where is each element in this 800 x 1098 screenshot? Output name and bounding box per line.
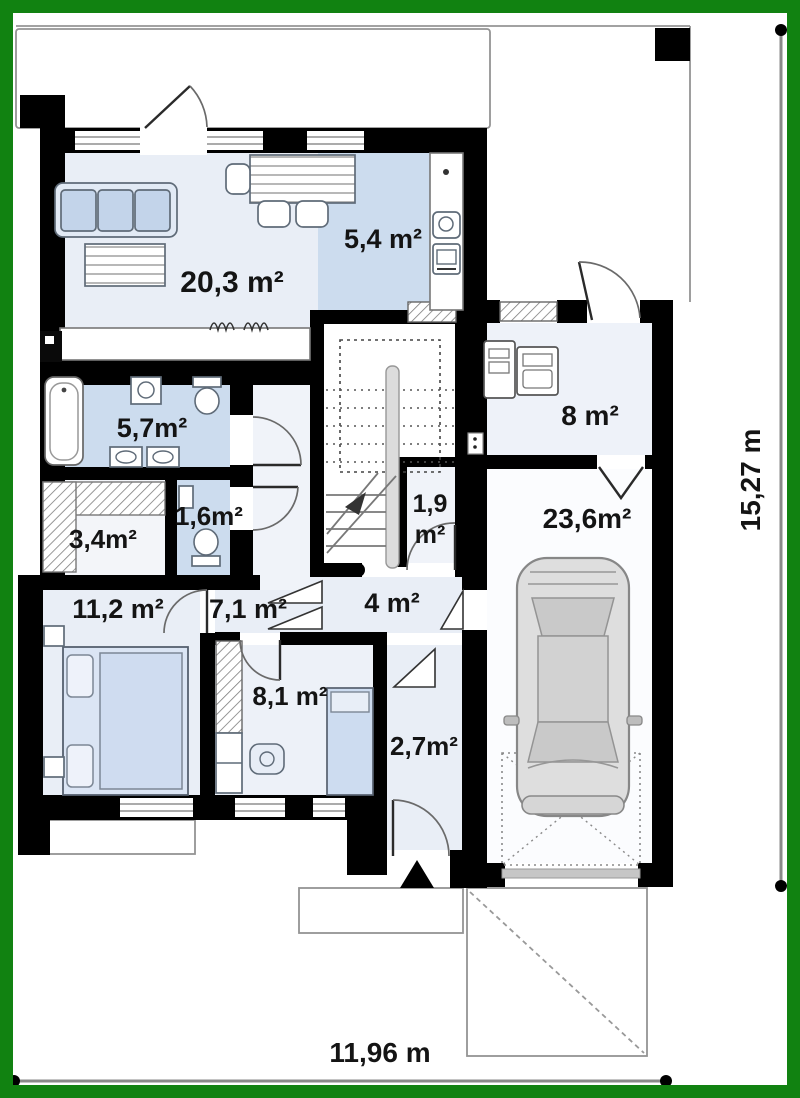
window [120,798,193,817]
fridge-detail [45,336,54,344]
window [75,131,140,150]
car-mirror [627,716,642,725]
room-label-kitchen: 5,4 m² [344,224,422,254]
dimension-dot [775,880,787,892]
toilet-bowl [195,388,219,414]
stair-newel-post [351,563,365,577]
dining-chair [296,201,328,227]
room-label-closet-line1: 1,9 [413,490,448,518]
pillow [331,692,369,712]
utility-garage-opening [597,455,645,469]
bedroom-furniture [44,626,188,795]
room-label-hall: 7,1 m² [209,594,287,624]
room-label-room81: 8,1 m² [252,681,327,711]
panel-detail [473,437,477,441]
floor-plan-page: 20,3 m² 5,4 m² 5,7m² 3,4m² 1,6m² 11,2 m²… [0,0,800,1098]
stool [250,744,284,774]
coffee-table [85,244,165,286]
window-radiator [500,302,557,321]
room-label-wc: 1,6m² [175,501,243,531]
stair-handrail [386,366,399,568]
window [235,798,285,817]
toilet-tank [192,556,220,566]
shelving-unit [216,641,242,733]
fridge [40,331,62,362]
width-dimension-label: 11,96 m [329,1037,430,1068]
kitchen-counter-bottom [60,328,310,360]
room-label-hall4: 4 m² [364,588,420,618]
toilet-bowl [194,529,218,555]
nightstand [44,757,64,777]
bathtub-drain [62,388,67,393]
entrance-door-opening [587,300,640,323]
room-label-utility: 8 m² [561,400,619,431]
counter-detail [443,169,449,175]
room-label-bathroom: 5,7m² [117,413,188,443]
car-rear-window [532,598,614,636]
dining-table [250,155,355,203]
room-label-vestibule: 2,7m² [390,731,458,761]
chimney [655,28,690,61]
height-dimension-label: 15,27 m [735,429,766,532]
terrace-door-opening [140,126,207,155]
panel-detail [473,445,477,449]
bathroom-sink [110,447,142,467]
sofa-cushion [98,190,133,231]
nightstand [44,626,64,646]
room-label-closet-line2: m² [415,521,446,549]
car-top-view [504,558,642,816]
room-label-living: 20,3 m² [180,266,283,299]
bathroom-sink [147,447,179,467]
window [307,131,364,150]
room-label-garage: 23,6m² [543,503,632,534]
sofa-cushion [61,190,96,231]
window [313,798,345,817]
toilet-tank [193,377,221,387]
electrical-panel [468,433,483,454]
hall-garage-opening [462,590,487,630]
floor-plan-drawing: 20,3 m² 5,4 m² 5,7m² 3,4m² 1,6m² 11,2 m²… [0,0,800,1098]
car-windshield [528,722,618,762]
pillow [67,745,93,787]
car-bumper [522,796,624,814]
washing-machine [131,377,161,404]
dining-chair [226,164,250,194]
dining-chair [258,201,290,227]
garage-door [502,869,640,878]
car-mirror [504,716,519,725]
window [207,131,263,150]
bed-blanket [100,653,182,789]
pillow [67,655,93,697]
kitchen-sink [433,212,460,238]
sofa-cushion [135,190,170,231]
room-label-bedroom: 11,2 m² [72,594,164,624]
dimension-dot [775,24,787,36]
room-label-wardrobe: 3,4m² [69,524,137,554]
car-roof [538,636,608,722]
